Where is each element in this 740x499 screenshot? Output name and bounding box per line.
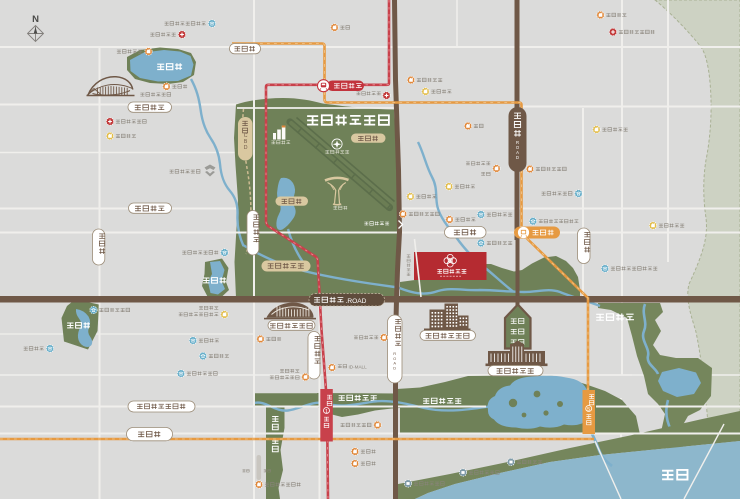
svg-text:ID-MALL: ID-MALL	[349, 365, 368, 370]
svg-text:N: N	[32, 14, 39, 25]
svg-text:.ROAD: .ROAD	[346, 298, 367, 305]
svg-text:5: 5	[587, 407, 590, 413]
svg-text:1: 1	[325, 409, 328, 415]
svg-text:D: D	[516, 155, 519, 160]
svg-text:D: D	[244, 145, 248, 151]
svg-text:D: D	[393, 365, 396, 370]
